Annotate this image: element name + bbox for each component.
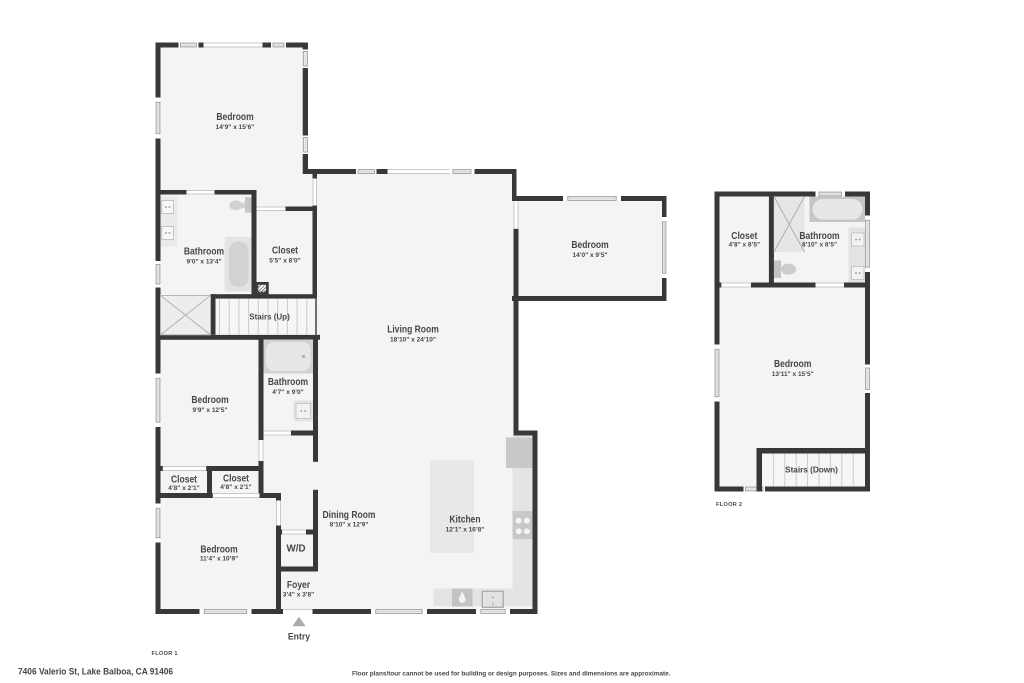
svg-text:Bathroom: Bathroom: [184, 246, 224, 257]
svg-text:Living Room: Living Room: [387, 324, 439, 335]
svg-text:FLOOR 2: FLOOR 2: [716, 502, 742, 508]
svg-text:9’9" x 12’5": 9’9" x 12’5": [192, 407, 227, 414]
svg-text:Closet: Closet: [171, 474, 197, 485]
svg-text:9’0" x 13’4": 9’0" x 13’4": [186, 258, 221, 265]
svg-text:Stairs (Up): Stairs (Up): [249, 313, 290, 322]
svg-text:7406 Valerio St, Lake Balboa,: 7406 Valerio St, Lake Balboa, CA 91406: [18, 666, 173, 676]
svg-text:4’8" x 2’1": 4’8" x 2’1": [168, 485, 199, 492]
svg-text:Dining Room: Dining Room: [323, 509, 376, 520]
svg-text:Bedroom: Bedroom: [200, 544, 237, 555]
svg-text:FLOOR 1: FLOOR 1: [152, 651, 178, 657]
svg-text:4’7" x 9’0": 4’7" x 9’0": [272, 389, 303, 396]
svg-text:5’5" x 8’0": 5’5" x 8’0": [269, 257, 300, 264]
svg-text:Entry: Entry: [288, 631, 311, 641]
svg-text:Kitchen: Kitchen: [449, 514, 481, 525]
svg-text:13’11" x 15’5": 13’11" x 15’5": [772, 371, 814, 378]
svg-text:14’9" x 15’6": 14’9" x 15’6": [216, 124, 255, 131]
svg-text:14’0" x 9’5": 14’0" x 9’5": [572, 252, 607, 259]
svg-text:4’8" x 2’1": 4’8" x 2’1": [220, 484, 251, 491]
svg-text:4’8" x 8’5": 4’8" x 8’5": [729, 242, 760, 249]
svg-text:Bedroom: Bedroom: [216, 111, 253, 122]
svg-text:8’10" x 8’5": 8’10" x 8’5": [802, 242, 837, 249]
svg-text:11’4" x 10’9": 11’4" x 10’9": [200, 555, 238, 562]
svg-text:12’1" x 16’8": 12’1" x 16’8": [446, 527, 485, 534]
svg-text:18’10" x 24’10": 18’10" x 24’10": [390, 336, 436, 343]
svg-text:Bathroom: Bathroom: [799, 230, 839, 241]
svg-text:Closet: Closet: [731, 230, 757, 241]
svg-text:W/D: W/D: [286, 544, 305, 555]
svg-text:8’10" x 12’9": 8’10" x 12’9": [330, 522, 369, 529]
svg-text:3’4" x 3’8": 3’4" x 3’8": [283, 591, 314, 598]
svg-text:Floor plans/tour cannot be use: Floor plans/tour cannot be used for buil…: [352, 670, 671, 677]
svg-text:Bedroom: Bedroom: [191, 394, 228, 405]
svg-text:Closet: Closet: [223, 473, 249, 484]
svg-text:Bedroom: Bedroom: [571, 239, 608, 250]
svg-text:Stairs (Down): Stairs (Down): [785, 465, 838, 474]
svg-text:Bathroom: Bathroom: [268, 376, 308, 387]
svg-text:Closet: Closet: [272, 245, 298, 256]
svg-text:Foyer: Foyer: [287, 579, 311, 590]
svg-text:Bedroom: Bedroom: [774, 358, 811, 369]
